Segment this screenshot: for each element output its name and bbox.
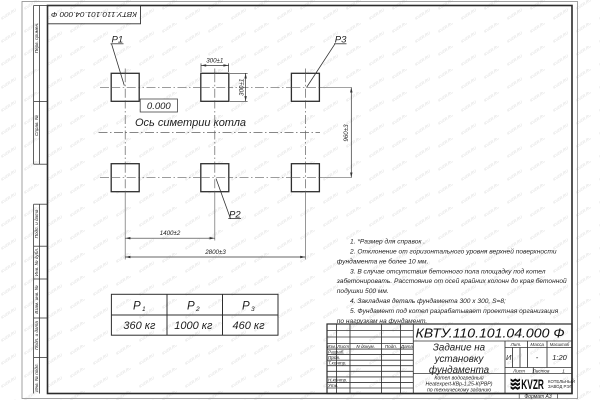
svg-text:Подп.: Подп. [385,344,397,349]
svg-text:1. *Размер для справок .: 1. *Размер для справок . [350,238,425,246]
svg-text:Р: Р [133,300,141,312]
svg-text:Котел водогрейный: Котел водогрейный [434,375,483,382]
svg-text:Подп. и дата: Подп. и дата [34,321,39,350]
svg-text:Лит.: Лит. [510,342,522,347]
svg-text:Инв. № дубл.: Инв. № дубл. [34,248,39,276]
svg-text:ЗАВОД РЭП: ЗАВОД РЭП [548,384,573,389]
svg-text:Инв. № подл.: Инв. № подл. [34,363,39,392]
svg-text:Листов: Листов [532,368,550,373]
svg-text:1400±2: 1400±2 [160,230,181,237]
svg-text:300±1: 300±1 [206,57,223,64]
svg-text:4. Закладная деталь фундамента: 4. Закладная деталь фундамента 300 х 300… [350,297,506,305]
svg-text:Т.контр.: Т.контр. [328,361,347,366]
svg-text:Лист: Лист [512,368,525,373]
svg-text:300±1: 300±1 [238,79,245,96]
svg-text:Справ. №: Справ. № [34,115,39,136]
svg-text:1000 кг: 1000 кг [174,320,213,332]
svg-text:Перв. примен.: Перв. примен. [34,23,39,54]
svg-text:Пров.: Пров. [328,355,340,360]
svg-text:1: 1 [142,306,146,313]
svg-text:360 кг: 360 кг [123,320,156,332]
svg-text:фундамента: фундамента [429,365,490,376]
svg-text:960±3: 960±3 [343,124,350,142]
svg-text:Масштаб: Масштаб [550,342,570,347]
svg-text:3. В случае отсутствия бетонно: 3. В случае отсутствия бетонного пола пл… [350,267,546,275]
svg-text:Утв.: Утв. [328,383,338,388]
svg-text:Дата: Дата [400,344,414,349]
svg-text:Масса: Масса [530,342,544,347]
svg-text:2800±3: 2800±3 [204,249,226,256]
svg-text:КВТУ.110.101.04.000 Ф: КВТУ.110.101.04.000 Ф [416,326,565,341]
svg-text:1: 1 [562,368,565,373]
svg-text:2. Отклонение от горизонтально: 2. Отклонение от горизонтального уровня … [349,248,557,256]
svg-text:Формат А3: Формат А3 [524,394,552,400]
svg-text:Р1: Р1 [112,35,124,46]
svg-text:Ось симетрии котла: Ось симетрии котла [135,117,246,129]
svg-text:KVZR: KVZR [521,377,544,392]
svg-text:1:20: 1:20 [552,353,567,362]
svg-text:460 кг: 460 кг [232,320,265,332]
svg-text:Р2: Р2 [229,209,241,220]
svg-text:по техническому заданию: по техническому заданию [427,388,491,394]
svg-text:забетонировать. Расстояние от: забетонировать. Расстояние от осей крайн… [336,277,567,285]
svg-text:Р3: Р3 [335,35,347,46]
svg-text:Лист: Лист [336,344,349,349]
svg-text:N докум.: N докум. [356,344,375,349]
svg-text:Подп. и дата: Подп. и дата [34,209,39,238]
svg-text:КОТЕЛЬНЫЙ: КОТЕЛЬНЫЙ [548,379,575,384]
svg-text:фундамента не более 10 мм.: фундамента не более 10 мм. [337,257,429,265]
svg-text:Разраб.: Разраб. [328,350,345,355]
svg-text:Взам. инв. №: Взам. инв. № [34,285,39,313]
svg-text:Задание на: Задание на [433,343,486,354]
svg-text:Р: Р [187,300,195,312]
svg-text:2: 2 [195,306,200,313]
svg-text:3: 3 [251,306,255,313]
svg-text:И: И [506,353,512,362]
svg-text:Н.контр.: Н.контр. [328,377,347,382]
svg-text:подушки 500 мм.: подушки 500 мм. [337,287,389,295]
svg-text:0.000: 0.000 [147,101,171,112]
svg-text:Изм.: Изм. [327,344,336,349]
svg-text:установку: установку [434,354,485,365]
svg-text:КВТУ.110.101.04.000 Ф: КВТУ.110.101.04.000 Ф [51,10,137,19]
svg-text:Р: Р [242,300,250,312]
svg-text:5. Фундамент под котел разраба: 5. Фундамент под котел разрабатывает про… [350,307,559,315]
